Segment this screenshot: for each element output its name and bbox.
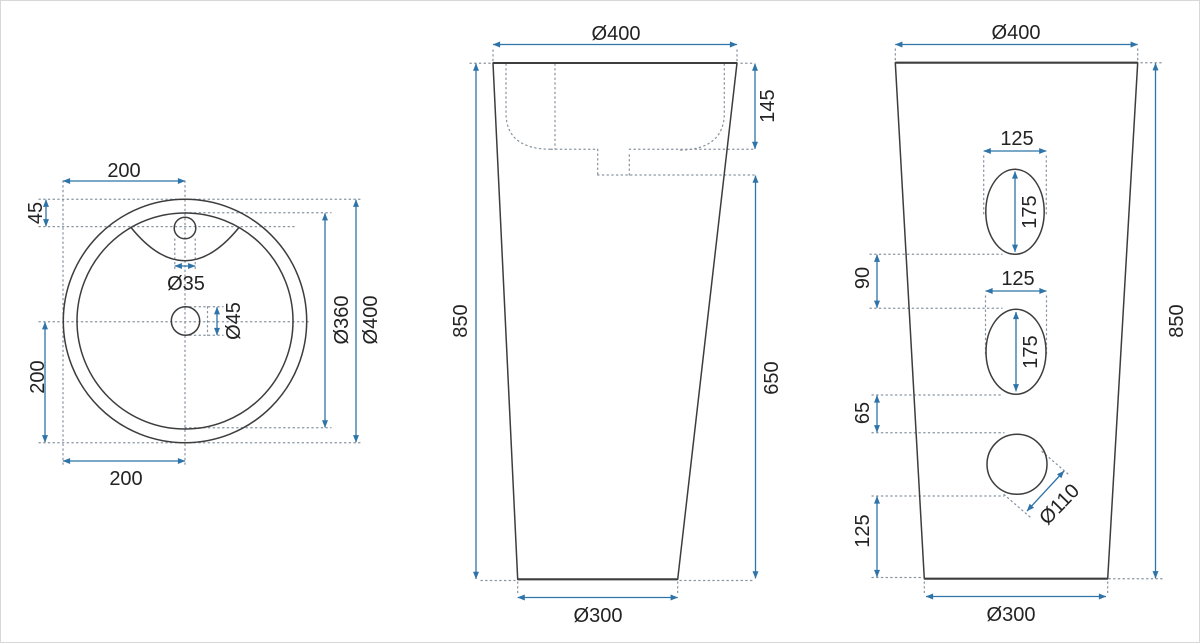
dim-faucet-hole-label: Ø35 xyxy=(167,273,205,295)
front-view-hidden-lines xyxy=(470,50,755,593)
drain-outlet-hole xyxy=(987,434,1047,494)
side-gap-holes-label: 90 xyxy=(852,267,874,289)
side-drain-hole-label: Ø110 xyxy=(1035,480,1084,529)
side-total-height-label: 850 xyxy=(1166,304,1188,337)
side-hole2-height-label: 175 xyxy=(1020,335,1042,368)
side-hole2-width-label: 125 xyxy=(1001,268,1034,290)
side-top-diameter-label: Ø400 xyxy=(992,22,1041,44)
dim-faucet-offset-label: 45 xyxy=(25,202,47,224)
side-gap-hole-drain-label: 65 xyxy=(852,402,874,424)
front-basin-depth-label: 145 xyxy=(757,89,779,122)
side-hole1-height-label: 175 xyxy=(1019,195,1041,228)
drawing-canvas: 200 45 Ø35 Ø45 200 200 Ø360 Ø400 xyxy=(1,1,1200,643)
dim-drain-hole-label: Ø45 xyxy=(223,302,245,340)
dim-outer-diameter-label: Ø400 xyxy=(360,296,382,345)
front-view: Ø400 145 850 650 Ø300 xyxy=(450,23,783,627)
technical-drawing-page: 200 45 Ø35 Ø45 200 200 Ø360 Ø400 xyxy=(0,0,1200,643)
front-view-body xyxy=(493,63,737,579)
drain-hole xyxy=(171,307,199,335)
dim-top-width-label: 200 xyxy=(107,160,140,182)
top-view: 200 45 Ø35 Ø45 200 200 Ø360 Ø400 xyxy=(25,160,382,490)
front-base-diameter-label: Ø300 xyxy=(574,605,623,627)
front-top-diameter-label: Ø400 xyxy=(592,23,641,45)
side-view: Ø400 125 175 90 125 175 65 Ø110 125 850 … xyxy=(852,22,1188,626)
dim-bottom-width-label: 200 xyxy=(109,468,142,490)
front-total-height-label: 850 xyxy=(450,304,472,337)
top-view-dimension-lines xyxy=(45,181,356,461)
side-base-diameter-label: Ø300 xyxy=(987,604,1036,626)
side-base-offset-label: 125 xyxy=(852,514,874,547)
front-body-height-label: 650 xyxy=(761,361,783,394)
front-view-dimension-lines xyxy=(476,45,756,598)
dim-inner-diameter-label: Ø360 xyxy=(331,296,353,345)
side-hole1-width-label: 125 xyxy=(1000,128,1033,150)
dim-left-height-label: 200 xyxy=(27,360,49,393)
